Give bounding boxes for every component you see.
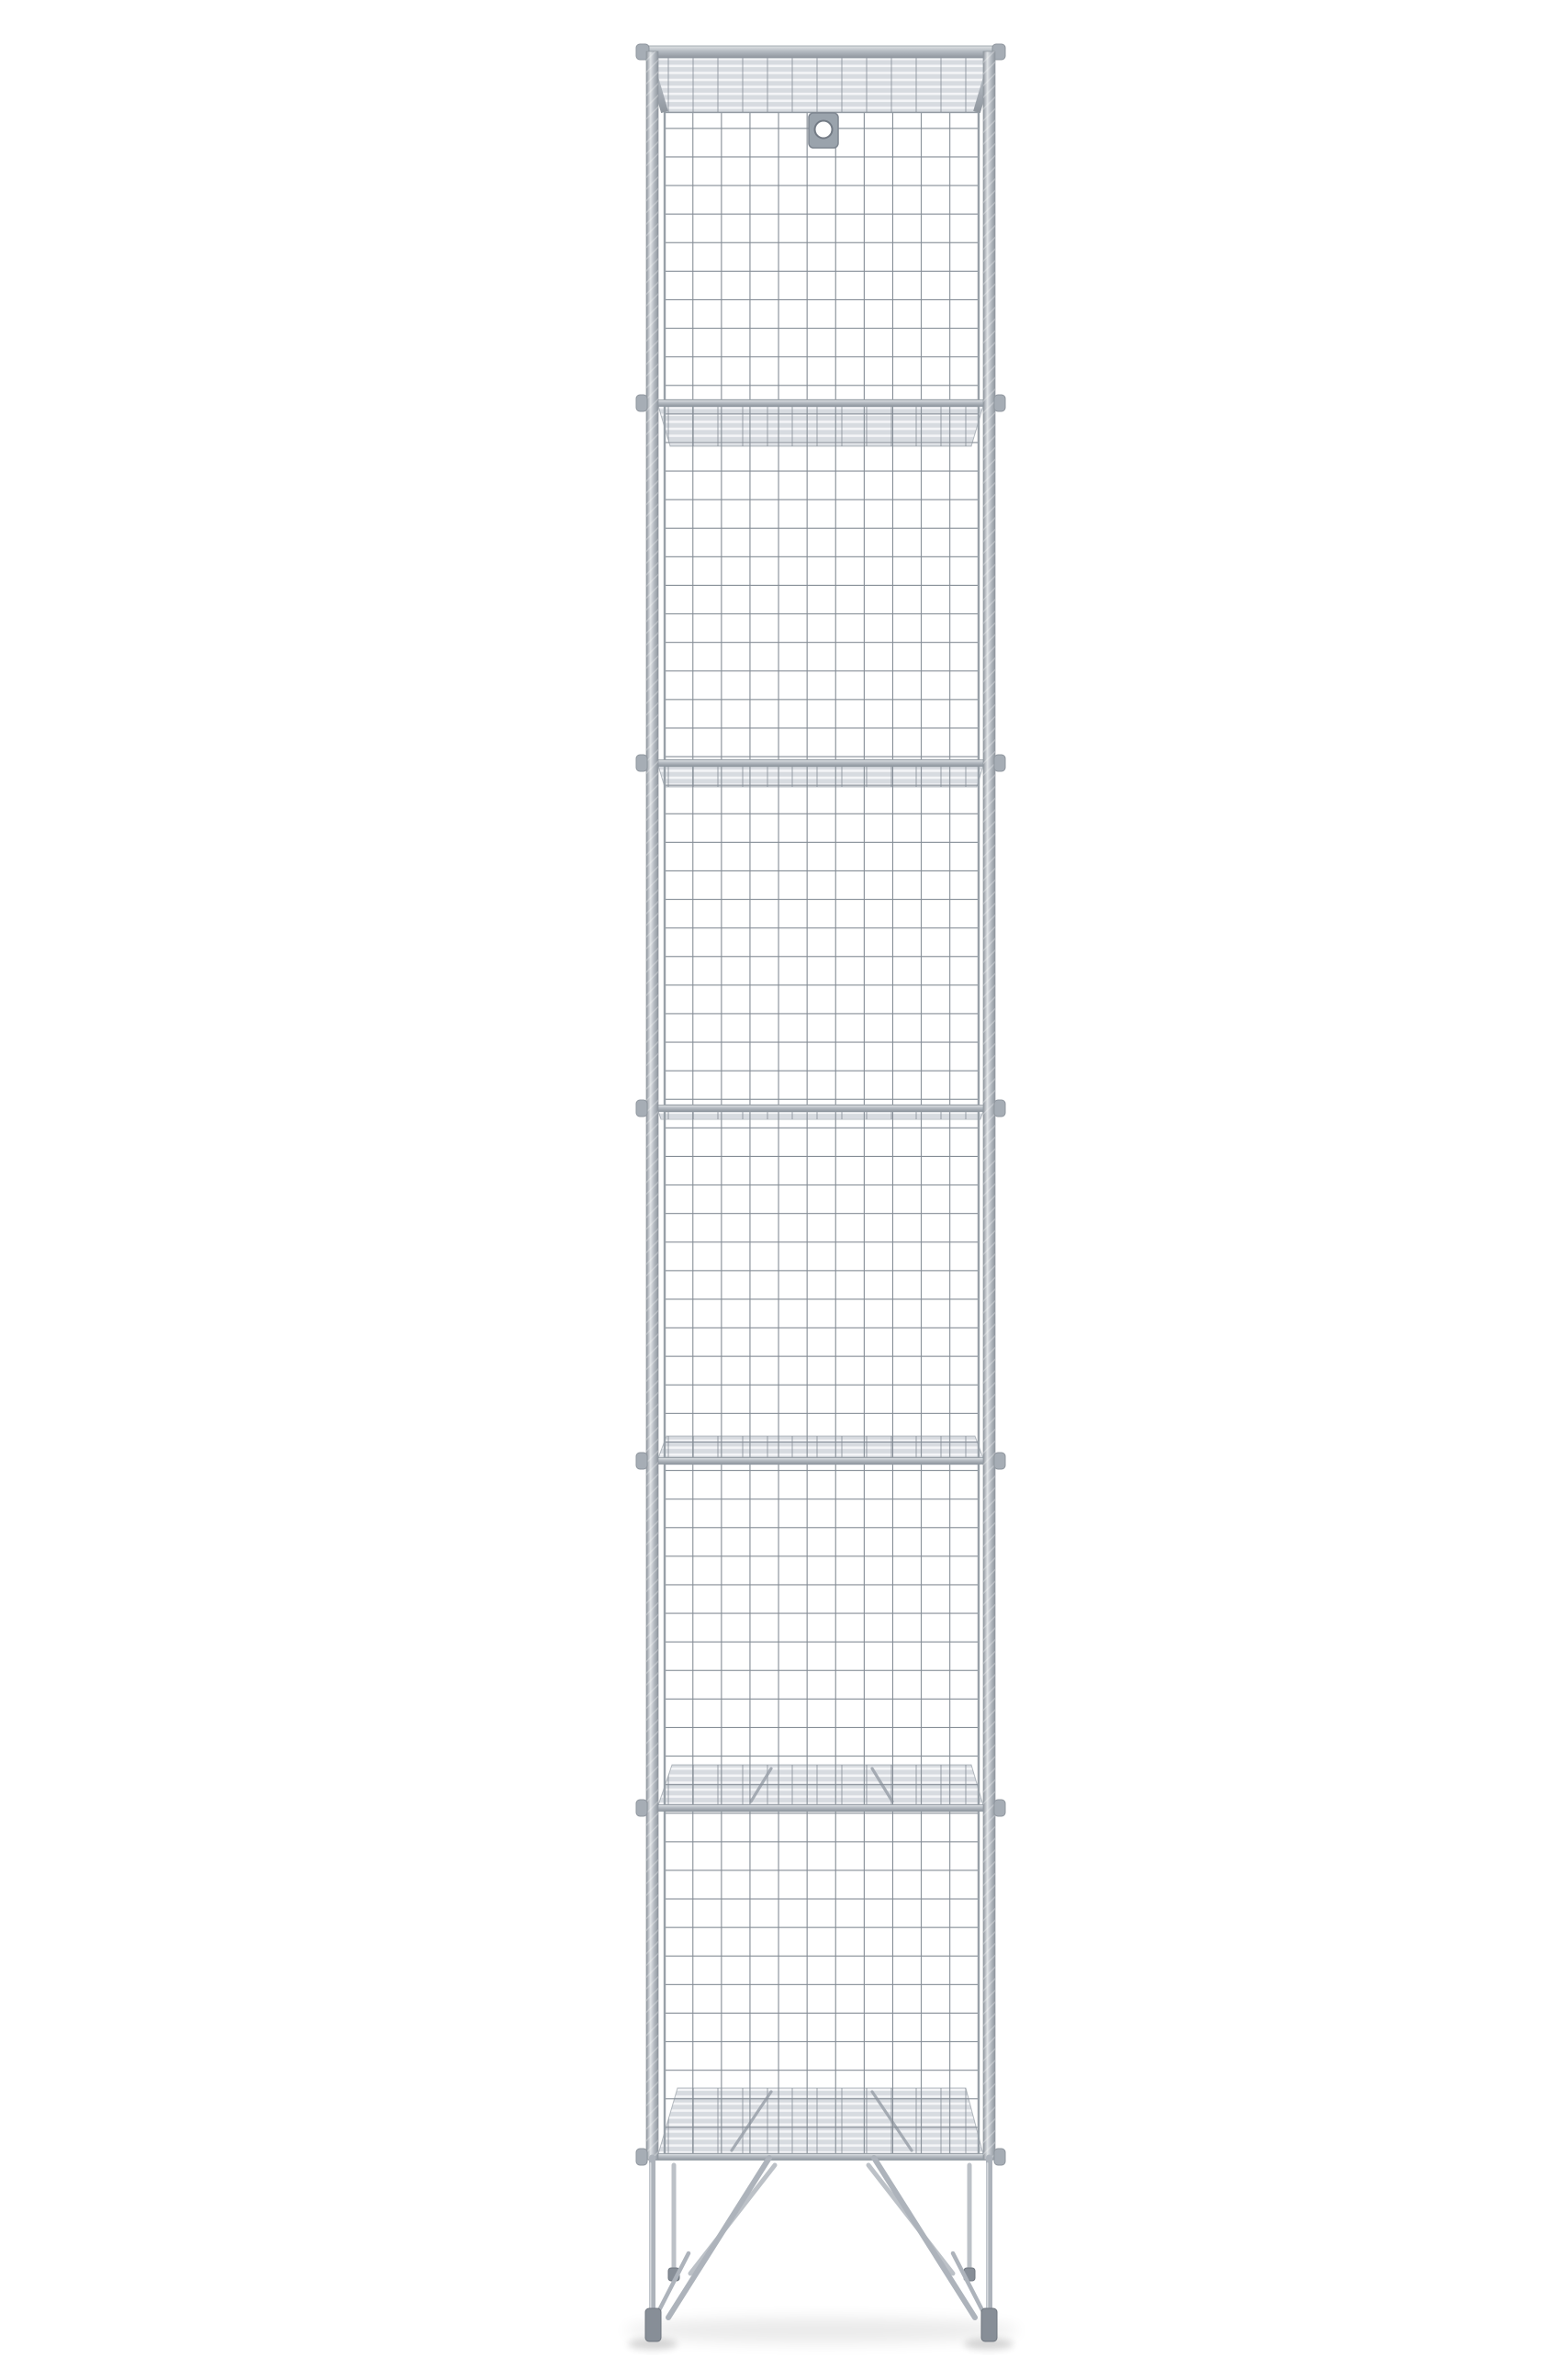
front-right-foot	[981, 2308, 997, 2341]
shelf-5-tube	[646, 1805, 995, 1812]
shelf-2-tube	[646, 760, 995, 767]
compartment-2-front-panel	[665, 406, 979, 760]
right-diagonal-brace	[874, 2158, 975, 2318]
product-photo: Tall narrow galvanised wire mesh locker …	[37, 15, 1568, 2365]
compartment-6-front-panel	[665, 1811, 979, 2154]
compartment-3-front-panel	[665, 766, 979, 1106]
top-front-tube	[639, 46, 1002, 58]
sloped-top	[636, 44, 1005, 112]
ground-shadow	[624, 2318, 1019, 2350]
left-diagonal-brace	[668, 2158, 769, 2318]
front-panels	[665, 112, 979, 2154]
compartment-5-front-panel	[665, 1464, 979, 1805]
screw-hole	[815, 121, 833, 139]
legs	[645, 2158, 997, 2341]
compartment-4-front-panel	[665, 1111, 979, 1458]
compartment-1-front-panel	[665, 112, 979, 400]
shelf-3-tube	[646, 1106, 995, 1112]
bottom-shelf-tube	[646, 2154, 995, 2161]
shelf-1-tube	[646, 400, 995, 407]
front-left-foot	[645, 2308, 661, 2341]
mount-tab	[809, 113, 838, 148]
wire-mesh-locker	[37, 15, 1568, 2365]
shelf-4-tube	[646, 1458, 995, 1465]
